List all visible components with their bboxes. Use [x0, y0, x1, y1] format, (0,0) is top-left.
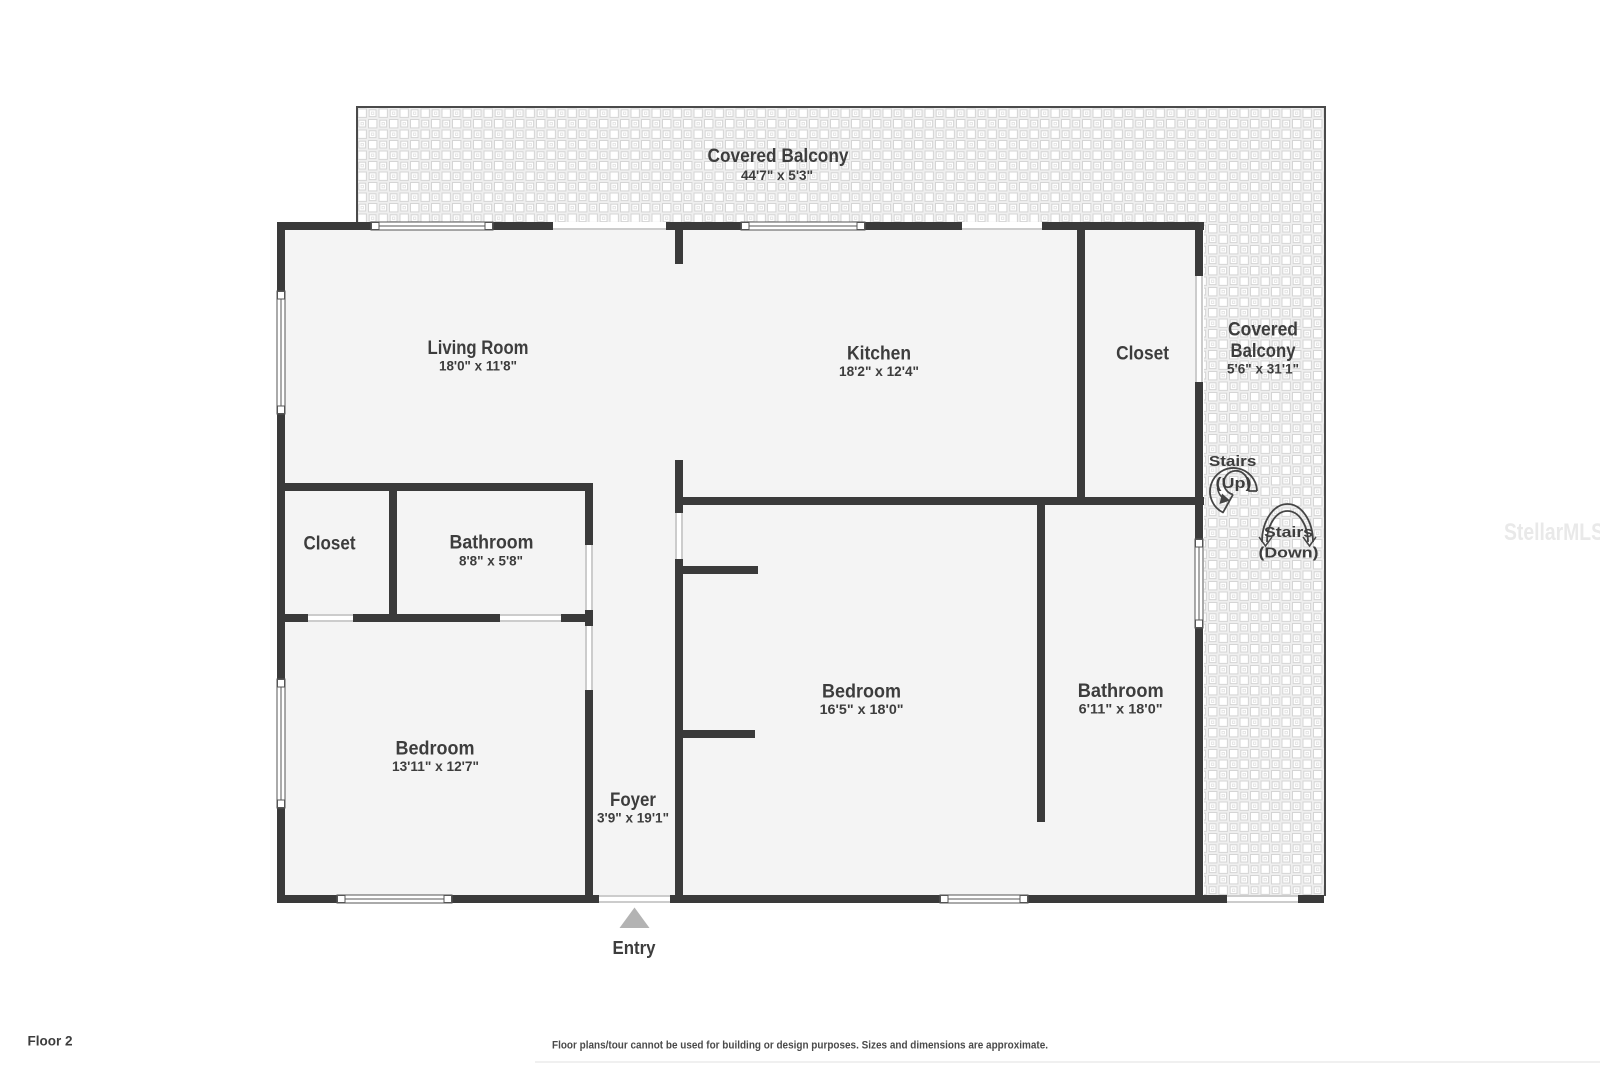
svg-text:Covered: Covered	[1228, 320, 1298, 341]
svg-text:Foyer: Foyer	[610, 790, 657, 811]
svg-text:5'6" x 31'1": 5'6" x 31'1"	[1227, 361, 1299, 377]
svg-text:Bathroom: Bathroom	[1078, 681, 1164, 702]
svg-text:18'0" x 11'8": 18'0" x 11'8"	[439, 358, 517, 374]
svg-text:Floor plans/tour cannot be use: Floor plans/tour cannot be used for buil…	[552, 1040, 1048, 1052]
svg-text:18'2" x 12'4": 18'2" x 12'4"	[839, 363, 919, 379]
svg-text:Stairs: Stairs	[1264, 524, 1313, 541]
svg-text:13'11" x 12'7": 13'11" x 12'7"	[392, 758, 479, 774]
svg-text:Kitchen: Kitchen	[847, 344, 911, 365]
svg-text:16'5" x 18'0": 16'5" x 18'0"	[820, 701, 904, 717]
svg-text:(Up): (Up)	[1216, 475, 1252, 492]
svg-text:Balcony: Balcony	[1231, 341, 1296, 362]
svg-text:Bedroom: Bedroom	[396, 739, 475, 760]
svg-text:Bedroom: Bedroom	[822, 682, 901, 703]
svg-text:Stairs: Stairs	[1209, 453, 1257, 470]
svg-text:8'8" x 5'8": 8'8" x 5'8"	[459, 553, 523, 569]
svg-text:(Down): (Down)	[1259, 545, 1319, 562]
svg-text:Closet: Closet	[304, 534, 357, 555]
svg-text:Bathroom: Bathroom	[450, 533, 534, 554]
svg-text:Floor 2: Floor 2	[28, 1033, 73, 1049]
svg-text:Covered Balcony: Covered Balcony	[708, 146, 849, 167]
svg-text:3'9" x 19'1": 3'9" x 19'1"	[597, 810, 669, 826]
svg-text:StellarMLS: StellarMLS	[1504, 519, 1600, 546]
svg-text:Living Room: Living Room	[428, 338, 529, 359]
svg-text:44'7" x 5'3": 44'7" x 5'3"	[741, 167, 813, 183]
svg-text:6'11" x 18'0": 6'11" x 18'0"	[1079, 701, 1163, 717]
svg-text:Entry: Entry	[613, 938, 656, 958]
svg-text:Closet: Closet	[1116, 344, 1170, 365]
